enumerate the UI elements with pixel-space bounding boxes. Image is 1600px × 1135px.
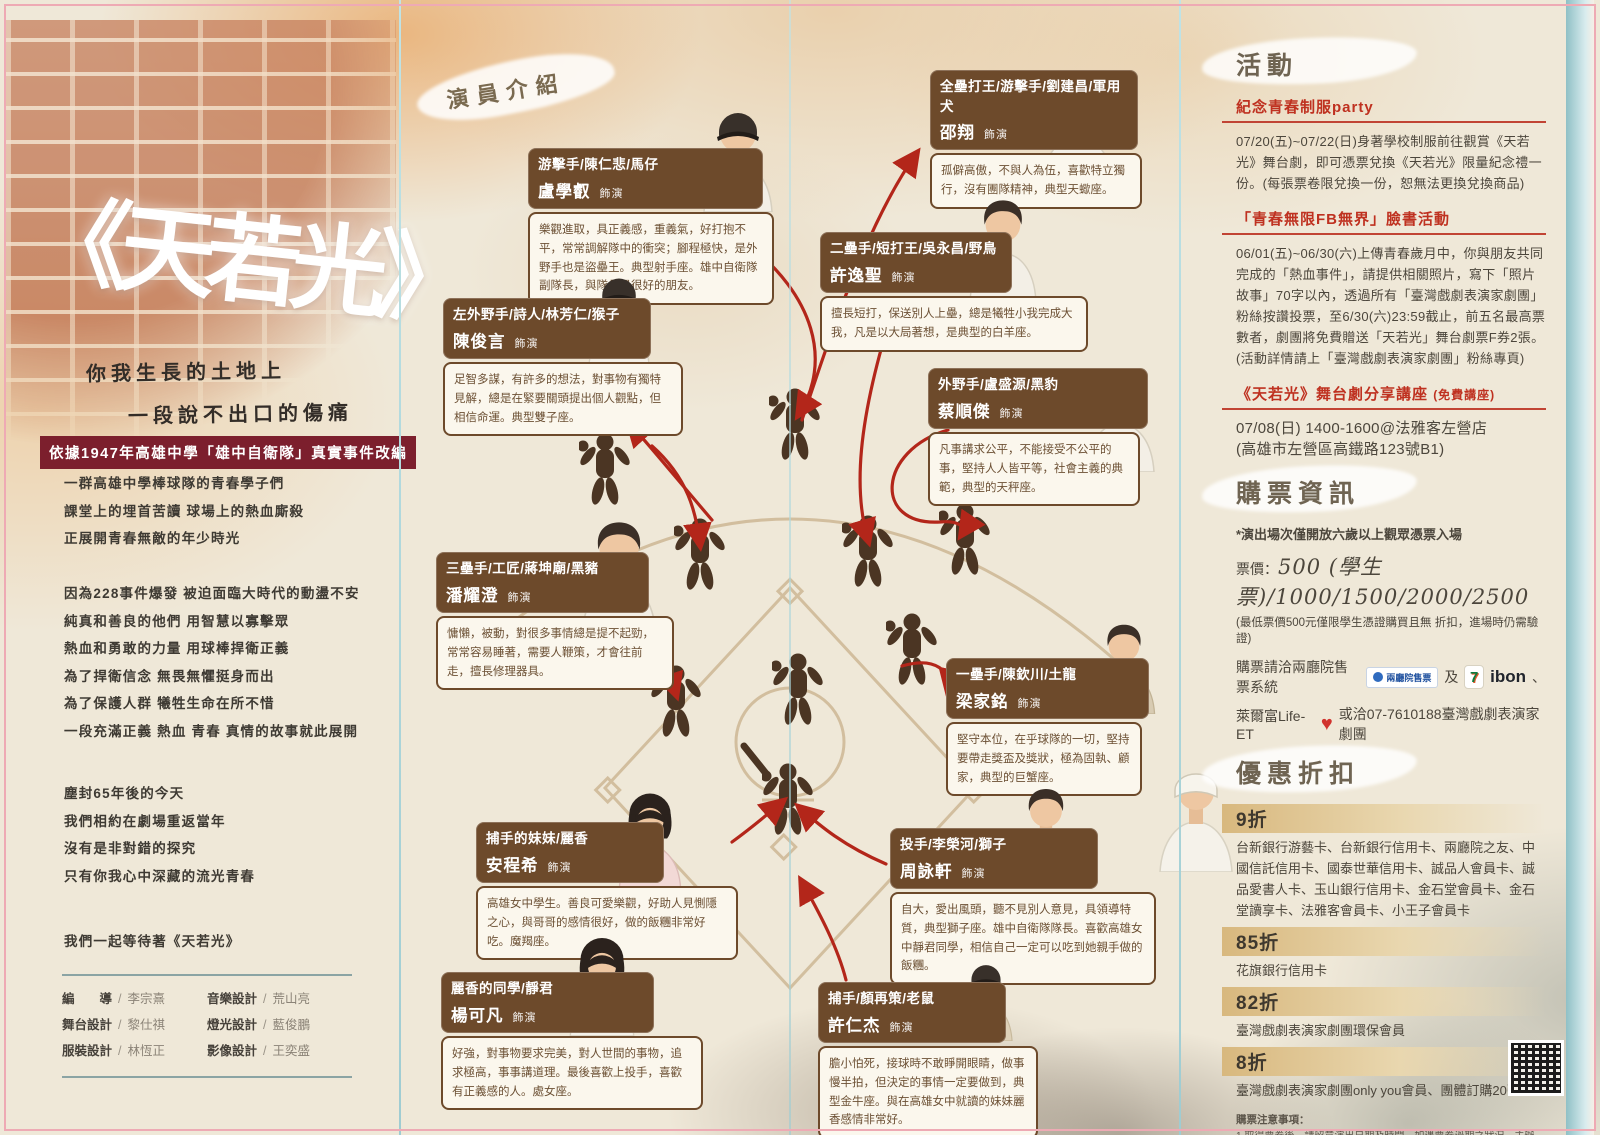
hilife-text: 萊爾富Life-ET [1236, 706, 1315, 742]
waiting-line: 我們一起等待著《天若光》 [64, 928, 240, 956]
discount-item: 85折 花旗銀行信用卡 [1236, 927, 1546, 981]
credit-role: 音樂設計 [207, 986, 257, 1012]
synopsis-line: 只有你我心中深藏的流光青春 [64, 863, 255, 891]
activity3-title: 《天若光》舞台劇分享講座 (免費講座) [1222, 383, 1546, 410]
actor-name: 邵翔 [940, 124, 975, 142]
discount-list: 9折 台新銀行游藝卡、台新銀行信用卡、兩廳院之友、中國信託信用卡、國泰世華信用卡… [1236, 804, 1546, 1101]
credit-name: 黎仕祺 [128, 1012, 166, 1038]
synopsis-line: 因為228事件爆發 被迫面臨大時代的動盪不安 [64, 580, 360, 608]
character-role: 外野手/盧盛源/黑豹 [938, 375, 1138, 395]
acts-label: 飾演 [515, 338, 539, 350]
actor-name: 梁家銘 [956, 693, 1009, 711]
character-role: 捕手/顏再策/老鼠 [828, 989, 996, 1009]
seven-eleven-logo: 7 [1464, 665, 1484, 689]
credit-separator: / [118, 1038, 121, 1064]
credit-name: 荒山亮 [273, 986, 311, 1012]
actor-name: 許仁杰 [828, 1017, 881, 1035]
cast-card-header: 全壘打王/游擊手/劉建昌/軍用犬 邵翔飾演 [930, 70, 1138, 150]
ibon-tail: 、 [1532, 667, 1546, 687]
character-description: 擅長短打，保送別人上壘，總是犧牲小我完成大我，凡是以大局著想，是典型的白羊座。 [820, 296, 1088, 352]
credit-row: 服裝設計 / 林恆正 影像設計 / 王奕盛 [62, 1038, 352, 1064]
phone-order-text: 或洽07-7610188臺灣戲劇表演家劇團 [1339, 704, 1546, 744]
ntch-ticket-logo: 兩廳院售票 [1366, 667, 1438, 688]
ibon-logo: ibon [1490, 667, 1526, 687]
synopsis-line: 純真和善良的他們 用智慧以寡擊眾 [64, 608, 360, 636]
acts-label: 飾演 [1000, 408, 1024, 420]
brochure-page: 《天若光》 你我生長的土地上 一段說不出口的傷痛 依據1947年高雄中學「雄中自… [0, 0, 1600, 1135]
credit-separator: / [263, 1038, 266, 1064]
credit-separator: / [263, 986, 266, 1012]
activity1-title: 紀念青春制服party [1222, 96, 1546, 123]
credit-role: 燈光設計 [207, 1012, 257, 1038]
based-on-banner: 依據1947年高雄中學「雄中自衛隊」真實事件改編 [40, 436, 416, 469]
price-values: 500 (學生票)/1000/1500/2000/2500 [1236, 555, 1529, 609]
cast-card-header: 捕手/顏再策/老鼠 許仁杰飾演 [818, 982, 1006, 1043]
discount-text: 臺灣戲劇表演家劇團only you會員、團體訂購20張 [1236, 1080, 1546, 1101]
synopsis-line: 課堂上的埋首苦讀 球場上的熱血廝殺 [64, 498, 304, 526]
acts-label: 飾演 [513, 1012, 537, 1024]
credit-name: 王奕盛 [273, 1038, 311, 1064]
ntch-logo-dot [1373, 672, 1383, 682]
activity3-line1: 07/08(日) 1400-1600@法雅客左營店 [1236, 418, 1546, 439]
synopsis-line: 塵封65年後的今天 [64, 780, 255, 808]
synopsis-paragraph-3: 塵封65年後的今天我們相約在劇場重返當年沒有是非對錯的探究只有你我心中深藏的流光… [64, 780, 255, 890]
credit-separator: / [118, 1012, 121, 1038]
credit-name: 李宗熹 [128, 986, 166, 1012]
activity1-body: 07/20(五)~07/22(日)身著學校制服前往觀賞《天若光》舞台劇，即可憑票… [1236, 131, 1546, 194]
credit-name: 藍俊鵬 [273, 1012, 311, 1038]
cast-card: 二壘手/短打王/吳永昌/野鳥 許逸聖飾演 擅長短打，保送別人上壘，總是犧牲小我完… [820, 232, 1088, 352]
tickets-section-title: 購票資訊 [1236, 474, 1360, 510]
character-role: 麗香的同學/靜君 [451, 979, 644, 999]
character-description: 好強，對事物要求完美，對人世間的事物，追求極高，事事講道理。最後喜歡上投手，喜歡… [441, 1036, 703, 1111]
activity2-body: 06/01(五)~06/30(六)上傳青春歲月中，你與朋友共同完成的「熱血事件」… [1236, 243, 1546, 369]
synopsis-line: 沒有是非對錯的探究 [64, 835, 255, 863]
production-credits: 編 導 / 李宗熹 音樂設計 / 荒山亮 舞台設計 / 黎仕祺 燈光設計 / [62, 974, 352, 1078]
life-et-heart-icon: ♥ [1321, 714, 1333, 734]
discount-item: 8折 臺灣戲劇表演家劇團only you會員、團體訂購20張 [1236, 1047, 1546, 1101]
discount-rate: 82折 [1222, 987, 1546, 1016]
acts-label: 飾演 [892, 272, 916, 284]
info-column: 活動 紀念青春制服party 07/20(五)~07/22(日)身著學校制服前往… [1180, 0, 1566, 1135]
character-role: 三壘手/工匠/蔣坤廟/黑豬 [446, 559, 639, 579]
cast-card: 外野手/盧盛源/黑豹 蔡順傑飾演 凡事講求公平，不能接受不公平的事，堅持人人皆平… [928, 368, 1140, 506]
synopsis-line: 為了保護人群 犧牲生命在所不惜 [64, 690, 360, 718]
credit-separator: / [118, 986, 121, 1012]
cast-card: 三壘手/工匠/蔣坤廟/黑豬 潘耀澄飾演 慵懶，被動，對很多事情總是提不起勁，常常… [436, 552, 674, 690]
cast-card-header: 一壘手/陳欽川/土龍 梁家銘飾演 [946, 658, 1149, 719]
synopsis-line: 一群高雄中學棒球隊的青春學子們 [64, 470, 304, 498]
synopsis-line: 一段充滿正義 熱血 青春 真情的故事就此展開 [64, 718, 360, 746]
discount-text: 花旗銀行信用卡 [1236, 960, 1546, 981]
acts-label: 飾演 [890, 1022, 914, 1034]
cast-card-header: 三壘手/工匠/蔣坤廟/黑豬 潘耀澄飾演 [436, 552, 649, 613]
discount-rate: 8折 [1222, 1047, 1546, 1076]
price-note: (最低票價500元僅限學生憑證購買且無 折扣，進場時仍需驗證) [1236, 615, 1546, 647]
acts-label: 飾演 [984, 129, 1008, 141]
price-label: 票價： [1236, 561, 1278, 577]
buy-channel-text: 購票請洽兩廳院售票系統 [1236, 657, 1360, 697]
play-subtitle-line1: 你我生長的土地上 [86, 354, 286, 386]
free-seminar-note: (免費講座) [1433, 388, 1495, 402]
activity2-title: 「青春無限FB無界」臉書活動 [1222, 208, 1546, 235]
character-role: 游擊手/陳仁悲/馬仔 [538, 155, 753, 175]
acts-label: 飾演 [600, 188, 624, 200]
credit-name: 林恆正 [128, 1038, 166, 1064]
actor-name: 陳俊言 [453, 333, 506, 351]
acts-label: 飾演 [508, 592, 532, 604]
cast-card-header: 游擊手/陳仁悲/馬仔 盧學叡飾演 [528, 148, 763, 209]
credit-row: 編 導 / 李宗熹 音樂設計 / 荒山亮 [62, 986, 352, 1012]
character-description: 膽小怕死，接球時不敢睜開眼睛，做事慢半拍，但決定的事情一定要做到，典型金牛座。與… [818, 1046, 1038, 1135]
character-role: 投手/李榮河/獅子 [900, 835, 1088, 855]
credit-role: 編 導 [62, 986, 112, 1012]
synopsis-line: 我們相約在劇場重返當年 [64, 808, 255, 836]
cast-card: 麗香的同學/靜君 楊可凡飾演 好強，對事物要求完美，對人世間的事物，追求極高，事… [441, 972, 703, 1110]
character-role: 全壘打王/游擊手/劉建昌/軍用犬 [940, 77, 1128, 116]
cast-card-header: 捕手的妹妹/麗香 安程希飾演 [476, 822, 664, 883]
age-restriction-note: *演出場次僅開放六歲以上觀眾憑票入場 [1236, 524, 1546, 543]
acts-label: 飾演 [962, 868, 986, 880]
right-edge-band [1566, 0, 1594, 1135]
qr-code [1508, 1040, 1564, 1096]
synopsis-paragraph-1: 一群高雄中學棒球隊的青春學子們課堂上的埋首苦讀 球場上的熱血廝殺正展開青春無敵的… [64, 470, 304, 553]
cast-card-header: 二壘手/短打王/吳永昌/野鳥 許逸聖飾演 [820, 232, 1012, 293]
character-description: 凡事講求公平，不能接受不公平的事，堅持人人皆平等，社會主義的典範，典型的天秤座。 [928, 432, 1140, 507]
credit-role: 服裝設計 [62, 1038, 112, 1064]
credit-role: 影像設計 [207, 1038, 257, 1064]
character-description: 慵懶，被動，對很多事情總是提不起勁，常常容易睡著，需要人鞭策，才會往前走，擅長修… [436, 616, 674, 691]
discount-text: 臺灣戲劇表演家劇團環保會員 [1236, 1020, 1546, 1041]
cast-card-header: 左外野手/詩人/林芳仁/猴子 陳俊言飾演 [443, 298, 651, 359]
actor-name: 楊可凡 [451, 1007, 504, 1025]
cast-card-header: 麗香的同學/靜君 楊可凡飾演 [441, 972, 654, 1033]
discount-item: 82折 臺灣戲劇表演家劇團環保會員 [1236, 987, 1546, 1041]
actor-name: 安程希 [486, 857, 539, 875]
fold-line-center [789, 0, 791, 1135]
discount-item: 9折 台新銀行游藝卡、台新銀行信用卡、兩廳院之友、中國信託信用卡、國泰世華信用卡… [1236, 804, 1546, 921]
synopsis-line: 熱血和勇敢的力量 用球棒捍衛正義 [64, 635, 360, 663]
cast-card: 捕手/顏再策/老鼠 許仁杰飾演 膽小怕死，接球時不敢睜開眼睛，做事慢半拍，但決定… [818, 982, 1038, 1135]
acts-label: 飾演 [548, 862, 572, 874]
purchase-note-line: 1.取得票卷後，請留意演出日期及時間，如遇票卷過期之狀況，主辦單位無法提供任何補… [1236, 1130, 1536, 1135]
actor-name: 潘耀澄 [446, 587, 499, 605]
activity3-line2: (高雄市左營區高鐵路123號B1) [1236, 439, 1546, 460]
fold-line-left [399, 0, 401, 1135]
discount-section-title: 優惠折扣 [1236, 754, 1360, 790]
credit-role: 舞台設計 [62, 1012, 112, 1038]
character-role: 捕手的妹妹/麗香 [486, 829, 654, 849]
actor-name: 蔡順傑 [938, 403, 991, 421]
discount-text: 台新銀行游藝卡、台新銀行信用卡、兩廳院之友、中國信託信用卡、國泰世華信用卡、誠品… [1236, 837, 1546, 921]
play-subtitle-line2: 一段說不出口的傷痛 [128, 396, 353, 429]
character-description: 足智多謀，有許多的想法，對事物有獨特見解，總是在緊要關頭提出個人觀點，但相信命運… [443, 362, 683, 437]
cast-card: 左外野手/詩人/林芳仁/猴子 陳俊言飾演 足智多謀，有許多的想法，對事物有獨特見… [443, 298, 683, 436]
purchase-notes-title: 購票注意事項： [1236, 1113, 1536, 1128]
actor-name: 周詠軒 [900, 863, 953, 881]
cast-card-header: 外野手/盧盛源/黑豹 蔡順傑飾演 [928, 368, 1148, 429]
synopsis-line: 正展開青春無敵的年少時光 [64, 525, 304, 553]
synopsis-line: 為了捍衛信念 無畏無懼挺身而出 [64, 663, 360, 691]
character-role: 二壘手/短打王/吳永昌/野鳥 [830, 239, 1002, 259]
credit-row: 舞台設計 / 黎仕祺 燈光設計 / 藍俊鵬 [62, 1012, 352, 1038]
activities-section-title: 活動 [1236, 46, 1298, 82]
synopsis-paragraph-2: 因為228事件爆發 被迫面臨大時代的動盪不安純真和善良的他們 用智慧以寡擊眾熱血… [64, 580, 360, 745]
credit-separator: / [263, 1012, 266, 1038]
cast-card-header: 投手/李榮河/獅子 周詠軒飾演 [890, 828, 1098, 889]
purchase-notes: 購票注意事項： 1.取得票卷後，請留意演出日期及時間，如遇票卷過期之狀況，主辦單… [1236, 1113, 1536, 1135]
discount-rate: 9折 [1222, 804, 1546, 833]
discount-rate: 85折 [1222, 927, 1546, 956]
actor-name: 許逸聖 [830, 267, 883, 285]
character-role: 左外野手/詩人/林芳仁/猴子 [453, 305, 641, 325]
character-role: 一壘手/陳欽川/土龍 [956, 665, 1139, 685]
acts-label: 飾演 [1018, 698, 1042, 710]
and-text: 及 [1444, 667, 1458, 687]
actor-name: 盧學叡 [538, 183, 591, 201]
